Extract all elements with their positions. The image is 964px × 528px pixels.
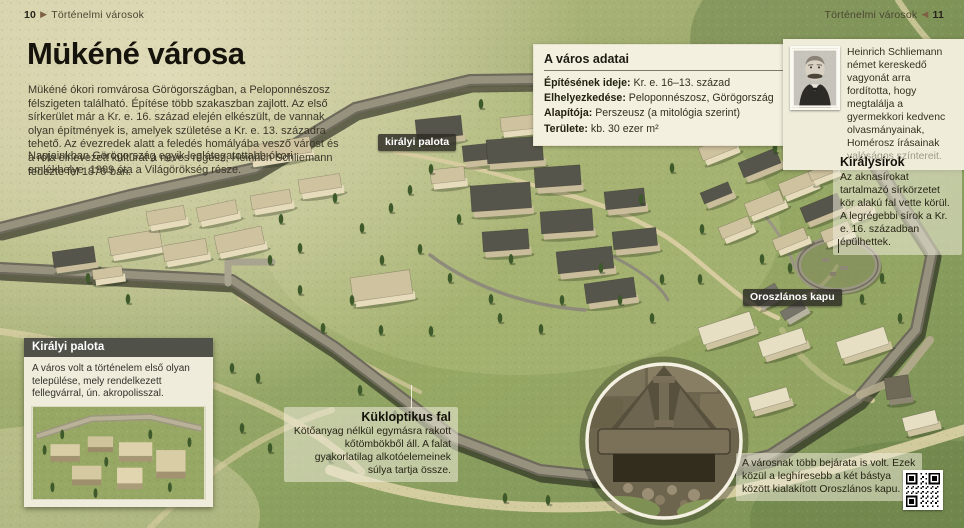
cyclopean-leader-line [411,385,412,408]
qr-code [903,470,943,510]
lion-gate-map-label: Oroszlános kapu [743,289,842,306]
fact-row-area: Területe: kb. 30 ezer m² [544,122,811,137]
royal-palace-box-title: Királyi palota [24,338,213,357]
entrances-note: A városnak több bejárata is volt. Ezek k… [736,453,922,501]
schliemann-portrait [790,46,840,110]
page-title: Mükéné városa [27,36,245,72]
page-header-right: Történelmi városok◀11 [824,9,944,21]
fact-row-built: Építésének ideje: Kr. e. 16–13. század [544,76,811,91]
page-number-right: 11 [933,9,945,21]
section-title-right: Történelmi városok [824,9,917,21]
entrances-body: A városnak több bejárata is volt. Ezek k… [742,457,916,496]
section-title-left: Történelmi városok [51,9,144,21]
royal-tombs-title: Királysírok [840,155,955,169]
page-header-left: 10▶Történelmi városok [24,9,144,21]
royal-tombs-note: Királysírok Az aknasírokat tartalmazó sí… [833,151,962,255]
palace-map-label: királyi palota [378,134,456,151]
royal-tombs-leader-line [838,239,839,253]
cyclopean-wall-note: Kükloptikus fal Kötőanyag nélkül egymásr… [284,407,458,482]
page-number-left: 10 [24,9,36,21]
city-facts-box: A város adatai Építésének ideje: Kr. e. … [533,44,822,146]
schliemann-text: Heinrich Schliemann német kereskedő vagy… [847,46,957,163]
intro-paragraph-2: Napjainkban Görögország egyik leglátogat… [28,150,344,177]
city-facts-title: A város adatai [544,52,811,71]
royal-palace-box-body: A város volt a történelem első olyan tel… [24,357,213,406]
fact-row-founder: Alapítója: Perszeusz (a mitológia szerin… [544,106,811,121]
book-spread: 10▶Történelmi városok Történelmi városok… [0,0,964,528]
royal-palace-box: Királyi palota A város volt a történelem… [24,338,213,507]
arrow-left-icon: ◀ [917,9,932,19]
cyclopean-wall-title: Kükloptikus fal [291,410,451,424]
royal-palace-inset-image [31,406,206,500]
cyclopean-wall-body: Kötőanyag nélkül egymásra rakott kőtömbö… [291,425,451,477]
arrow-right-icon: ▶ [36,9,51,19]
royal-tombs-body: Az aknasírokat tartalmazó sírkörzetet kö… [840,171,955,249]
fact-row-location: Elhelyezkedése: Peloponnészosz, Görögors… [544,91,811,106]
